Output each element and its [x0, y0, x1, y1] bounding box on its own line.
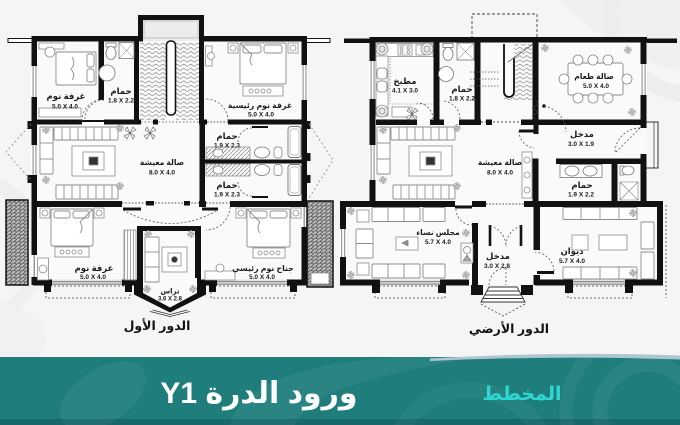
svg-text:صالة معيشة: صالة معيشة	[478, 158, 522, 167]
svg-text:1.9 X 2.2: 1.9 X 2.2	[568, 192, 594, 199]
svg-text:ديوان: ديوان	[560, 246, 584, 257]
svg-text:8.0 X 4.0: 8.0 X 4.0	[149, 170, 175, 177]
svg-text:غرفة نوم: غرفة نوم	[75, 263, 114, 274]
svg-text:5.0 X 4.0: 5.0 X 4.0	[249, 274, 275, 281]
svg-text:مدخل: مدخل	[570, 129, 594, 139]
svg-text:حمام: حمام	[571, 180, 592, 191]
svg-text:المخطط: المخطط	[483, 384, 562, 405]
svg-text:8.0 X 4.0: 8.0 X 4.0	[487, 170, 513, 177]
svg-text:جناح نوم رئيسي: جناح نوم رئيسي	[232, 264, 294, 273]
svg-text:5.0 X 4.0: 5.0 X 4.0	[583, 83, 609, 90]
svg-text:1.9 X 2.3: 1.9 X 2.3	[214, 192, 240, 199]
svg-text:مطبخ: مطبخ	[393, 76, 416, 87]
svg-text:صالة معيشة: صالة معيشة	[140, 158, 184, 167]
svg-text:مدخل: مدخل	[486, 251, 510, 261]
svg-text:3.0 X 2.8: 3.0 X 2.8	[484, 263, 510, 270]
svg-text:3.6 X 2.8: 3.6 X 2.8	[158, 297, 183, 303]
svg-text:غرفة نوم: غرفة نوم	[47, 91, 86, 102]
svg-text:مجلس نساء: مجلس نساء	[416, 228, 460, 237]
svg-text:تراس: تراس	[160, 289, 179, 296]
svg-text:4.1 X 3.0: 4.1 X 3.0	[392, 88, 418, 95]
svg-text:حمام: حمام	[110, 86, 131, 97]
svg-text:صالة طعام: صالة طعام	[574, 72, 614, 81]
svg-text:حمام: حمام	[216, 180, 237, 191]
svg-text:1.8 X 2.2: 1.8 X 2.2	[108, 98, 134, 105]
svg-text:5.7 X 4.0: 5.7 X 4.0	[559, 258, 585, 265]
svg-text:حمام: حمام	[451, 84, 472, 95]
svg-text:الدور الأول: الدور الأول	[124, 318, 191, 333]
svg-text:5.0 X 4.0: 5.0 X 4.0	[80, 274, 106, 281]
svg-text:‫ورود الدرة Y1‬: ‫ورود الدرة Y1‬	[160, 377, 357, 411]
svg-text:5.0 X 4.0: 5.0 X 4.0	[52, 104, 78, 111]
svg-text:غرفة نوم رئيسية: غرفة نوم رئيسية	[228, 101, 292, 110]
svg-text:3.0 X 1.9: 3.0 X 1.9	[568, 141, 594, 148]
svg-text:الدور الأرضي: الدور الأرضي	[469, 321, 549, 336]
svg-text:حمام: حمام	[216, 131, 237, 142]
svg-text:5.0 X 4.0: 5.0 X 4.0	[248, 112, 274, 119]
svg-text:5.7 X 4.0: 5.7 X 4.0	[425, 239, 451, 246]
svg-text:1.8 X 2.2: 1.8 X 2.2	[449, 96, 475, 103]
svg-text:1.9 X 2.3: 1.9 X 2.3	[214, 143, 240, 150]
